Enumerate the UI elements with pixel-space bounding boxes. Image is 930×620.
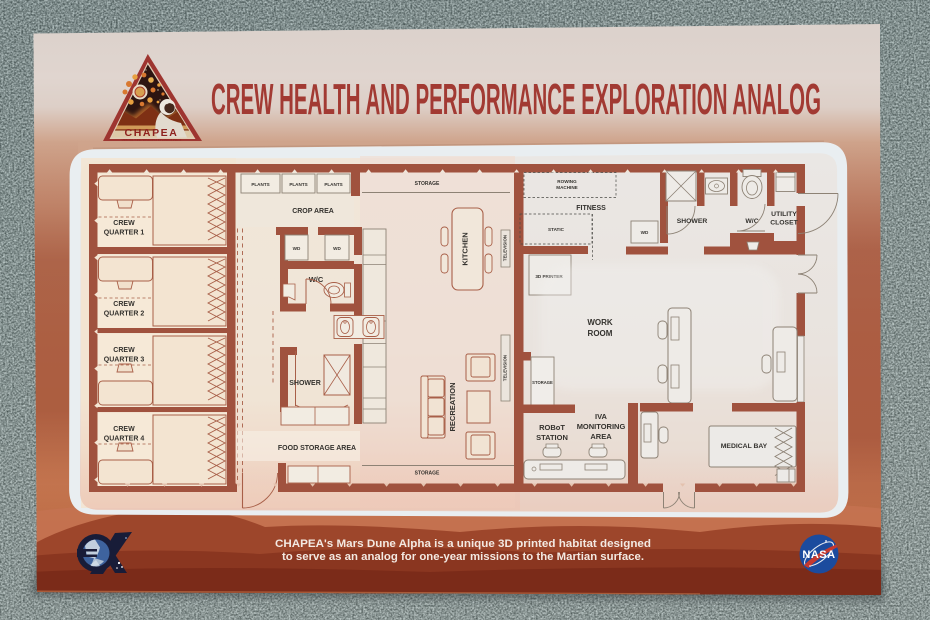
svg-text:QUARTER 1: QUARTER 1 [104,230,145,237]
svg-text:WORK: WORK [587,318,613,327]
svg-text:IVA: IVA [595,412,608,421]
svg-text:QUARTER 4: QUARTER 4 [104,436,145,443]
svg-text:CREW: CREW [113,220,135,227]
svg-text:STORAGE: STORAGE [415,181,440,187]
svg-text:TELEVISION: TELEVISION [503,235,508,261]
svg-text:MACHINE: MACHINE [556,185,577,190]
svg-text:CREW: CREW [113,426,135,433]
svg-text:CREW: CREW [113,347,135,354]
svg-text:STATIC: STATIC [548,227,565,232]
svg-text:STORAGE: STORAGE [532,380,553,385]
svg-text:CHAPEA: CHAPEA [125,127,179,139]
svg-text:WD: WD [293,246,301,251]
svg-text:CLOSET: CLOSET [770,220,798,227]
svg-text:NASA: NASA [802,549,835,561]
svg-text:KITCHEN: KITCHEN [461,232,470,265]
svg-text:WD: WD [333,246,341,251]
svg-text:ROWING: ROWING [557,179,577,184]
svg-text:FOOD STORAGE AREA: FOOD STORAGE AREA [278,445,356,452]
svg-text:ROBoT: ROBoT [539,423,565,432]
svg-text:QUARTER 3: QUARTER 3 [104,357,145,364]
svg-text:PLANTS: PLANTS [251,182,269,187]
svg-text:TELEVISION: TELEVISION [503,355,508,381]
svg-text:WD: WD [641,230,649,235]
svg-text:MONITORING: MONITORING [577,422,626,431]
svg-text:QUARTER 2: QUARTER 2 [104,311,145,318]
svg-text:SHOWER: SHOWER [677,218,708,225]
svg-text:CROP AREA: CROP AREA [292,208,334,215]
svg-text:AREA: AREA [590,432,612,441]
svg-text:CHAPEA's Mars Dune Alpha is a: CHAPEA's Mars Dune Alpha is a unique 3D … [275,538,651,550]
svg-text:RECREATION: RECREATION [448,382,457,431]
svg-text:STORAGE: STORAGE [415,471,440,477]
svg-text:CREW HEALTH AND PERFORMANCE EX: CREW HEALTH AND PERFORMANCE EXPLORATION … [122,138,182,141]
svg-text:FITNESS: FITNESS [576,205,606,212]
svg-text:PLANTS: PLANTS [289,182,307,187]
svg-text:MEDICAL BAY: MEDICAL BAY [721,443,768,450]
svg-text:CREW: CREW [113,301,135,308]
svg-text:to serve as an analog for one-: to serve as an analog for one-year missi… [282,551,644,563]
svg-text:CREW HEALTH AND PERFORMANCE EX: CREW HEALTH AND PERFORMANCE EXPLORATION … [211,75,821,124]
svg-text:SHOWER: SHOWER [289,380,321,387]
svg-text:PLANTS: PLANTS [324,182,342,187]
svg-text:ROOM: ROOM [588,329,613,338]
svg-text:W/C: W/C [745,218,758,225]
svg-text:STATION: STATION [536,433,568,442]
svg-text:UTILITY: UTILITY [771,211,797,218]
